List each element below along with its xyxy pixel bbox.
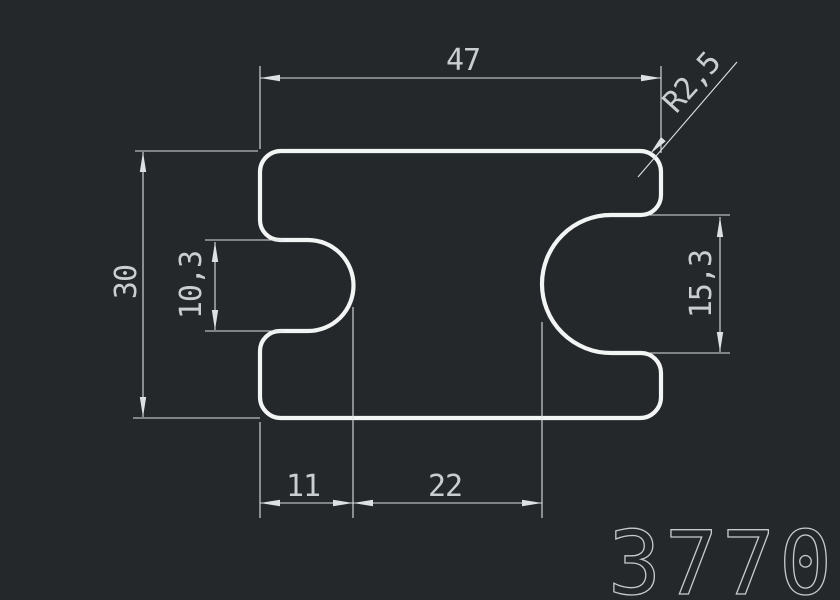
dim-label-right-notch-height: 15,3 [684, 250, 719, 318]
dim-label-overall-width: 47 [446, 43, 480, 78]
cad-viewport: 47 30 10,3 15,3 11 22 R2,5 3770 [0, 0, 840, 600]
dim-label-notch-gap: 22 [428, 469, 462, 504]
part-number-label: 3770 [608, 512, 836, 600]
dim-label-overall-height: 30 [109, 265, 144, 299]
dim-label-left-notch-depth: 11 [286, 469, 320, 504]
dim-label-left-notch-height: 10,3 [174, 251, 209, 319]
cad-canvas: 47 30 10,3 15,3 11 22 R2,5 3770 [0, 0, 840, 600]
